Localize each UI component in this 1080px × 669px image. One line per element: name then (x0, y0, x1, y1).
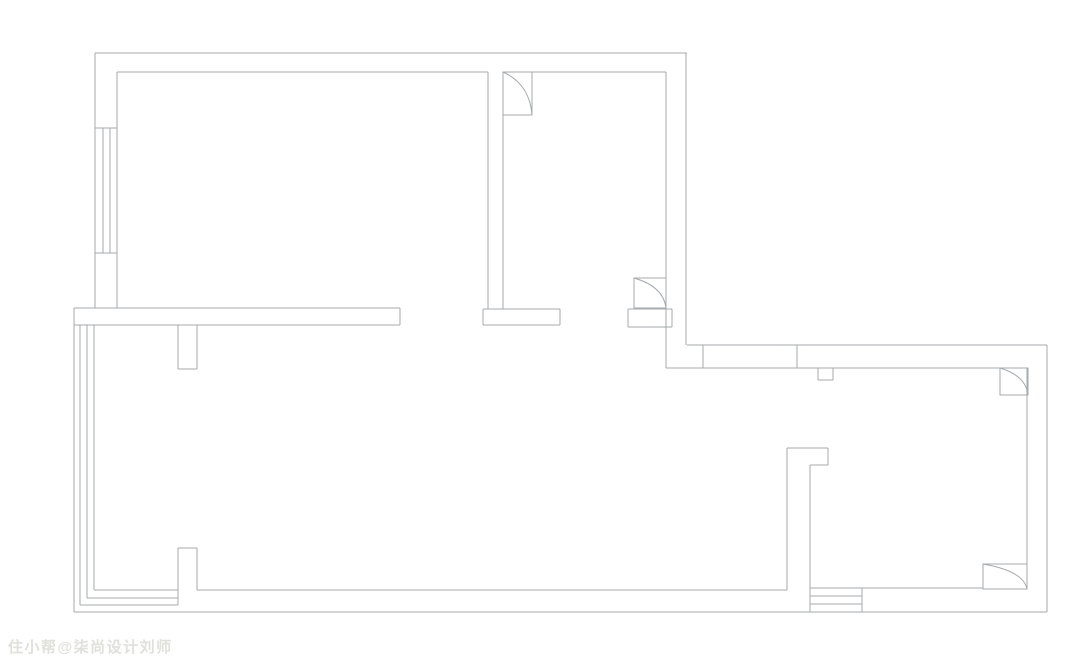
floorplan-canvas: 住小帮@柒尚设计刘师 (0, 0, 1080, 669)
floorplan-drawing (0, 0, 1080, 669)
door-symbol-swing (1000, 368, 1028, 395)
door-symbol-swing (503, 72, 532, 115)
door-symbol-swing (983, 564, 1027, 589)
watermark-text: 住小帮@柒尚设计刘师 (8, 636, 173, 657)
door-symbol-frame (1000, 368, 1028, 395)
door-symbol-frame (983, 564, 1027, 589)
door-symbol-frame (503, 72, 532, 115)
door-symbol-frame (634, 278, 666, 308)
door-symbol-swing (634, 278, 666, 308)
